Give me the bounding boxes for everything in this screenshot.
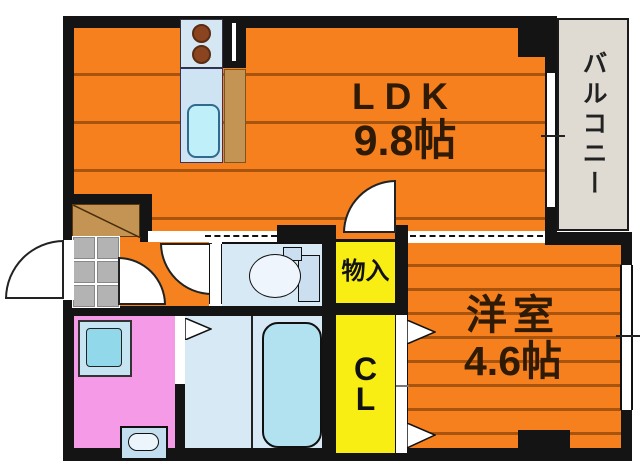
balcony-label: バルコニー — [575, 50, 611, 200]
shoe-cabinet-icon — [72, 204, 140, 237]
window-bedroom-right — [620, 265, 633, 410]
toilet-room — [222, 242, 322, 306]
wall-over-storage — [277, 225, 336, 242]
entrance-door-arc — [5, 240, 64, 299]
wall-bath-divider-lower — [175, 384, 185, 448]
bedroom-label: 洋室 4.6帖 — [420, 293, 606, 385]
storage-label: 物入 — [342, 259, 390, 286]
sliding-opening-dashed-hall — [148, 231, 277, 242]
door-triangle-icon — [407, 423, 436, 448]
kitchen-stove — [180, 19, 223, 68]
wall-storage-right — [395, 225, 408, 315]
kitchen-counter — [180, 68, 223, 163]
balcony: バルコニー — [557, 18, 629, 231]
ldk-name: LDK — [300, 76, 510, 117]
ldk-label: LDK 9.8帖 — [300, 76, 510, 166]
window-ldk-balcony — [545, 73, 557, 207]
bedroom-size: 4.6帖 — [420, 339, 606, 385]
closet-label-l: L — [356, 384, 376, 414]
washing-machine-icon — [78, 320, 132, 377]
floor-plan: バルコニー 物入 — [0, 0, 640, 470]
refrigerator-icon — [224, 69, 246, 163]
stove-burner-icon — [192, 45, 211, 64]
bathroom-door — [175, 316, 185, 384]
entrance-opening — [63, 240, 74, 300]
door-triangle-icon — [185, 318, 212, 340]
wall-ldk-genkan — [63, 194, 152, 204]
toilet-icon — [222, 244, 322, 306]
pillar — [518, 430, 570, 448]
closet-label-c: C — [354, 354, 377, 384]
entrance-tiles-icon — [72, 236, 120, 308]
ldk-size: 9.8帖 — [300, 117, 510, 165]
bedroom-name: 洋室 — [420, 293, 606, 339]
storage-room: 物入 — [336, 242, 395, 303]
wall-storage-divider — [336, 303, 395, 315]
bathtub-icon — [262, 322, 322, 448]
wall-toilet-right — [322, 242, 336, 453]
closet: C L — [336, 315, 395, 453]
wall-top — [63, 16, 557, 28]
stove-burner-icon — [192, 24, 211, 43]
toilet-door — [209, 244, 222, 304]
washroom — [74, 316, 175, 448]
kitchen-sink-icon — [187, 104, 220, 158]
wall-bedroom-top — [545, 232, 632, 245]
wash-basin-icon — [120, 426, 168, 460]
sliding-opening-dashed-bedroom — [408, 231, 545, 242]
kitchen-partition — [223, 19, 246, 68]
wall-topright-step — [518, 16, 557, 57]
